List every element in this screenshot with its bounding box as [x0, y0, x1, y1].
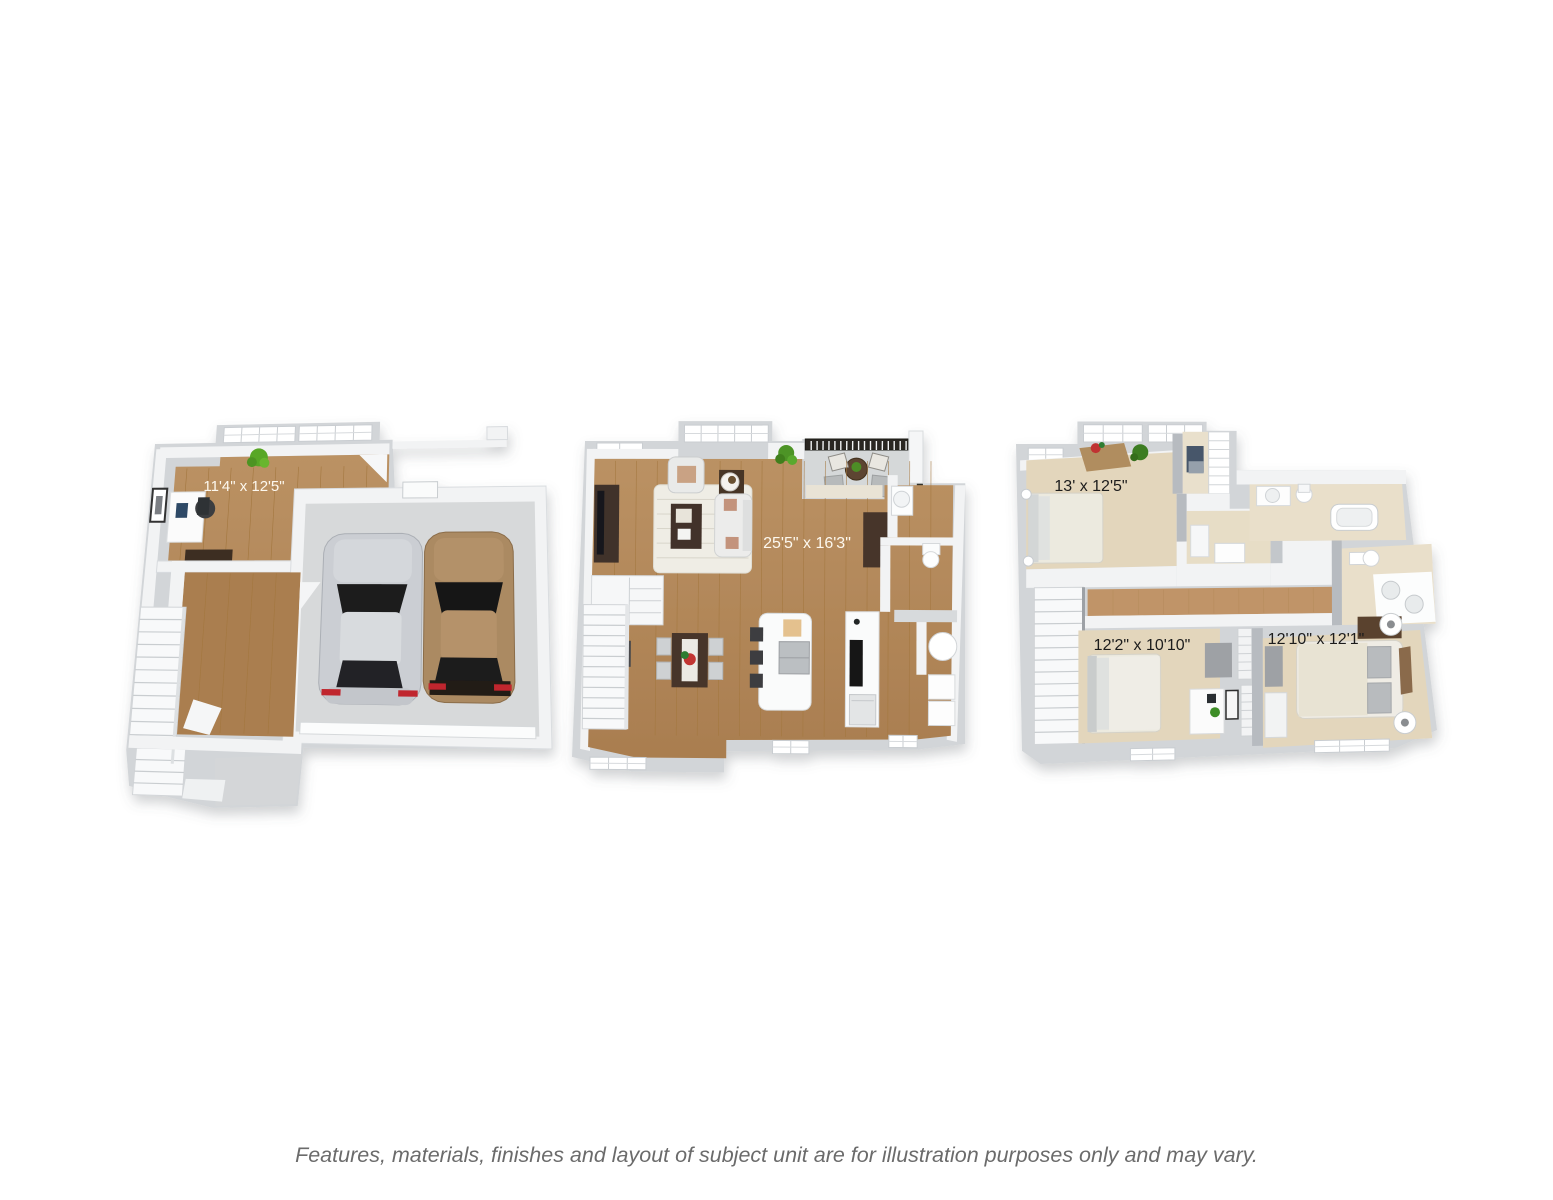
svg-text:12'2" x 10'10": 12'2" x 10'10": [1094, 637, 1191, 654]
svg-text:25'5" x 16'3": 25'5" x 16'3": [763, 535, 851, 552]
svg-text:12'10" x 12'1": 12'10" x 12'1": [1268, 631, 1365, 648]
svg-text:13' x 12'5": 13' x 12'5": [1054, 478, 1127, 495]
svg-text:11'4" x 12'5": 11'4" x 12'5": [203, 478, 284, 495]
